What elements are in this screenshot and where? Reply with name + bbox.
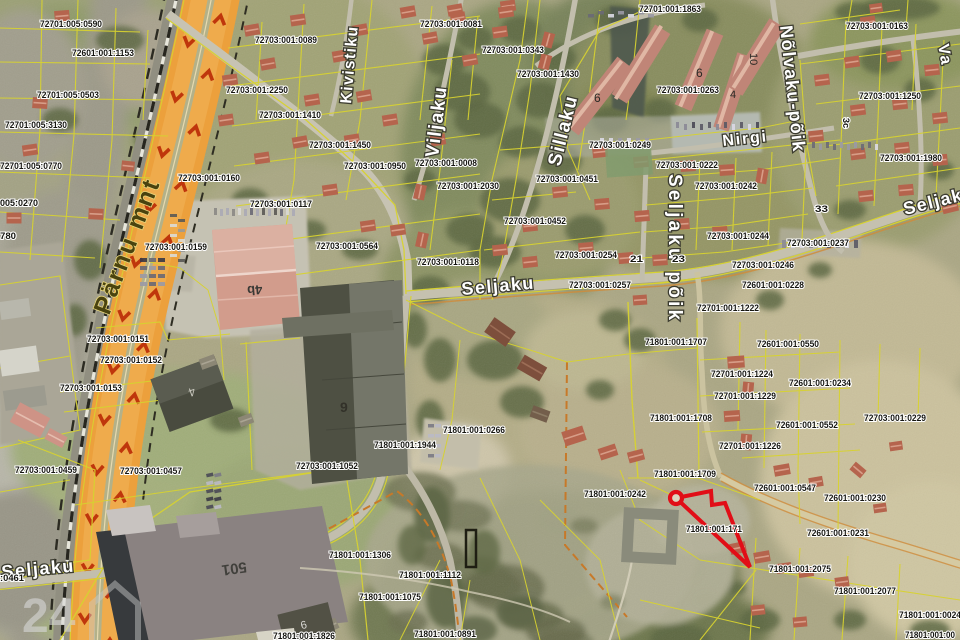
svg-text:71801:001:1826: 71801:001:1826 [273,631,335,640]
svg-text:72703:001:0263: 72703:001:0263 [657,85,719,95]
svg-text:72703:001:0457: 72703:001:0457 [120,466,182,476]
svg-text:005:0270: 005:0270 [0,198,38,208]
svg-text:72703:001:0950: 72703:001:0950 [344,161,406,171]
svg-text:71801:001:2077: 71801:001:2077 [834,586,896,596]
svg-text:72703:001:0249: 72703:001:0249 [589,140,651,150]
svg-text:72703:001:0242: 72703:001:0242 [695,181,757,191]
svg-text:71801:001:1709: 71801:001:1709 [654,469,716,479]
svg-text:72701:005:0503: 72701:005:0503 [37,90,99,100]
svg-text:72701:005:0770: 72701:005:0770 [0,161,62,171]
svg-text:72703:001:0564: 72703:001:0564 [316,241,378,251]
svg-text:72703:001:0153: 72703:001:0153 [60,383,122,393]
svg-text:72703:001:1430: 72703:001:1430 [517,69,579,79]
svg-text:71801:001:0242: 71801:001:0242 [584,489,646,499]
svg-text:72601:001:0230: 72601:001:0230 [824,493,886,503]
svg-text:72703:001:0452: 72703:001:0452 [504,216,566,226]
svg-text:72703:001:0118: 72703:001:0118 [417,257,479,267]
svg-text:71801:001:1708: 71801:001:1708 [650,413,712,423]
svg-text:72703:001:1980: 72703:001:1980 [880,153,942,163]
svg-text:72601:001:0552: 72601:001:0552 [776,420,838,430]
svg-text:71801:001:1306: 71801:001:1306 [329,550,391,560]
svg-text:72601:001:0228: 72601:001:0228 [742,280,804,290]
svg-text:72703:001:1250: 72703:001:1250 [859,91,921,101]
svg-text:72703:001:0246: 72703:001:0246 [732,260,794,270]
svg-text:72601:001:0231: 72601:001:0231 [807,528,869,538]
svg-text:3c: 3c [841,118,851,129]
svg-text:72701:001:1222: 72701:001:1222 [697,303,759,313]
svg-text:72601:001:0234: 72601:001:0234 [789,378,851,388]
svg-text:72703:001:1450: 72703:001:1450 [309,140,371,150]
svg-text:71801:001:00: 71801:001:00 [905,630,955,640]
svg-text::0461: :0461 [0,573,24,583]
svg-text:72703:001:0451: 72703:001:0451 [536,174,598,184]
svg-text:780: 780 [0,231,16,241]
svg-text:72701:001:1224: 72701:001:1224 [711,369,773,379]
svg-text:72703:001:0254: 72703:001:0254 [555,250,617,260]
svg-text:72703:001:0257: 72703:001:0257 [569,280,631,290]
svg-text:Seljaku põik: Seljaku põik [664,174,685,323]
svg-text:21: 21 [630,254,643,264]
svg-text:72703:001:1052: 72703:001:1052 [296,461,358,471]
svg-text:72701:001:1863: 72701:001:1863 [639,4,701,14]
svg-text:72703:001:0117: 72703:001:0117 [250,199,312,209]
svg-text:72703:001:0081: 72703:001:0081 [420,19,482,29]
svg-text:72703:001:0160: 72703:001:0160 [178,173,240,183]
svg-text:72703:001:0008: 72703:001:0008 [415,158,477,168]
svg-text:72703:001:0222: 72703:001:0222 [656,160,718,170]
svg-text:72703:001:0089: 72703:001:0089 [255,35,317,45]
svg-text:71801:001:1707: 71801:001:1707 [645,337,707,347]
svg-text:72703:001:0343: 72703:001:0343 [482,45,544,55]
svg-text:71801:001:2075: 71801:001:2075 [769,564,831,574]
svg-text:72703:001:0151: 72703:001:0151 [87,334,149,344]
svg-text:72703:001:2250: 72703:001:2250 [226,85,288,95]
svg-text:71801:001:1112: 71801:001:1112 [399,570,461,580]
svg-text:72701:005:3130: 72701:005:3130 [5,120,67,130]
svg-text:72703:001:1410: 72703:001:1410 [259,110,321,120]
svg-text:33: 33 [815,204,828,214]
svg-text:72703:001:0229: 72703:001:0229 [864,413,926,423]
svg-text:24: 24 [22,590,76,640]
svg-text:71801:001:0266: 71801:001:0266 [443,425,505,435]
svg-text:72601:001:0547: 72601:001:0547 [754,483,816,493]
svg-text:71801:001:1944: 71801:001:1944 [374,440,436,450]
svg-text:71801:001:1075: 71801:001:1075 [359,592,421,602]
svg-text:72703:001:0152: 72703:001:0152 [100,355,162,365]
svg-text:72703:001:2030: 72703:001:2030 [437,181,499,191]
svg-text:72701:005:0590: 72701:005:0590 [40,19,102,29]
svg-text:72703:001:0159: 72703:001:0159 [145,242,207,252]
svg-text:72701:001:1226: 72701:001:1226 [719,441,781,451]
svg-text:71801:001:0024: 71801:001:0024 [899,610,960,620]
svg-text:72701:001:1229: 72701:001:1229 [714,391,776,401]
svg-text:72703:001:0237: 72703:001:0237 [787,238,849,248]
svg-text:71801:001:0891: 71801:001:0891 [414,629,476,639]
svg-text:72601:001:0550: 72601:001:0550 [757,339,819,349]
svg-text:72703:001:0459: 72703:001:0459 [15,465,77,475]
svg-text:71801:001:171: 71801:001:171 [686,524,742,534]
svg-text:72703:001:0163: 72703:001:0163 [846,21,908,31]
svg-text:72601:001:1153: 72601:001:1153 [72,48,134,58]
svg-text:72703:001:0244: 72703:001:0244 [707,231,769,241]
svg-text:23: 23 [672,254,685,264]
